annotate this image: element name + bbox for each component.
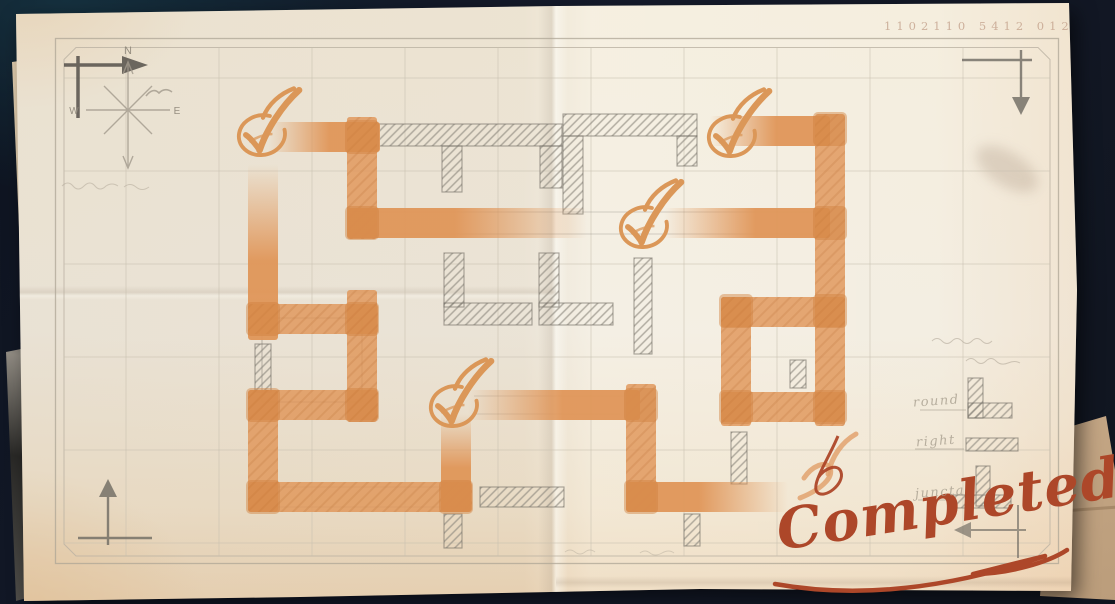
route-joint — [719, 294, 753, 328]
handwriting-scribble-left — [62, 183, 149, 190]
compass-rose: N W E — [62, 45, 181, 190]
under-paper-bottom-right — [0, 0, 1115, 604]
route-segment — [347, 208, 587, 238]
blueprint-frame — [56, 39, 1059, 564]
compass-arrow-east-head — [122, 56, 148, 74]
route-segment — [248, 304, 378, 334]
route-joint — [624, 480, 658, 514]
route-segment-hatch — [248, 390, 378, 420]
corner-mark-top-right — [962, 50, 1032, 115]
checkmark-icon — [431, 359, 491, 426]
legend-label-round: round — [913, 392, 961, 410]
route-joint — [246, 480, 280, 514]
checkmark-icon — [239, 88, 299, 155]
painted-route-layer — [246, 112, 847, 514]
bottom-fold-crease — [556, 576, 1076, 588]
route-joint — [813, 112, 847, 146]
pencil-segment — [953, 495, 1011, 508]
blueprint-paper — [0, 0, 1115, 604]
pencil-segment — [563, 114, 697, 136]
pencil-segment — [444, 514, 462, 548]
route-segment — [664, 208, 830, 238]
pencil-segment — [684, 514, 700, 546]
pencil-segment — [540, 146, 562, 188]
blueprint-scene: N W E Completed — [0, 0, 1115, 604]
pencil-segment — [563, 136, 583, 214]
route-segment-hatch — [347, 117, 377, 239]
pencil-segment — [255, 344, 271, 392]
stamp-flourish-red — [816, 436, 842, 494]
pencil-segment — [677, 136, 697, 166]
legend-annotations — [565, 339, 1020, 556]
route-segment — [721, 297, 845, 327]
legend-label-juncta: juncta — [915, 483, 966, 501]
vertical-fold-crease — [538, 0, 568, 604]
stamp-flourish-orange — [800, 464, 831, 498]
smudge-mark — [968, 136, 1045, 202]
pencil-segment — [480, 487, 564, 507]
checkmark-layer — [239, 88, 769, 426]
route-segment-hatch — [347, 290, 377, 422]
route-segment — [721, 297, 751, 426]
route-segment-hatch — [626, 384, 656, 512]
route-joint — [813, 294, 847, 328]
route-segment — [248, 482, 472, 512]
checkmark-icon — [709, 89, 769, 156]
route-segment-hatch — [248, 304, 378, 334]
checkmark-icon — [621, 180, 681, 247]
route-segment-hatch — [248, 390, 278, 512]
route-segment-hatch — [248, 482, 472, 512]
route-segment-hatch — [721, 297, 751, 426]
compass-label-north: N — [124, 45, 132, 57]
route-joint — [719, 390, 753, 424]
under-photo-strip — [0, 0, 1115, 604]
compass-label-east: E — [174, 106, 181, 117]
pencil-segment — [442, 146, 462, 192]
pencil-segment — [968, 378, 983, 418]
route-segment — [815, 114, 845, 426]
route-segment — [710, 116, 830, 146]
route-segment — [441, 414, 471, 512]
completed-stamp: Completed — [772, 434, 1115, 591]
bird-sketch — [146, 90, 172, 96]
under-paper-left — [0, 0, 1115, 604]
route-segment — [248, 390, 378, 420]
route-joint — [439, 480, 473, 514]
route-segment-hatch — [721, 392, 845, 422]
route-segment — [347, 117, 377, 239]
corner-mark-bottom-right — [954, 505, 1026, 558]
route-segment — [721, 392, 845, 422]
compass-label-west: W — [69, 106, 79, 117]
route-joint — [813, 206, 847, 240]
route-segment — [248, 390, 278, 512]
pencil-segment — [976, 466, 990, 506]
pencil-segment — [539, 303, 613, 325]
pencil-segment — [539, 253, 559, 307]
horizontal-fold-crease — [14, 286, 556, 300]
route-segment-hatch — [721, 297, 845, 327]
route-segment-hatch — [815, 114, 845, 426]
corner-mark-bottom-left — [78, 479, 152, 545]
blueprint-paper-wrap — [0, 0, 1115, 604]
serial-number: 1102110 5412 012 — [884, 19, 1074, 33]
route-segment — [626, 482, 788, 512]
route-segment — [468, 390, 640, 420]
pencil-segment — [444, 253, 464, 307]
route-joint — [624, 388, 658, 422]
puzzle-complete-screen: N W E Completed — [0, 0, 1115, 604]
pencil-segment — [731, 432, 747, 484]
pencil-segment — [968, 403, 1012, 418]
legend-label-right: right — [916, 433, 957, 451]
route-segment — [347, 290, 377, 422]
route-segment — [626, 384, 656, 512]
route-joint — [246, 302, 280, 336]
pencil-segment — [966, 438, 1018, 451]
pencil-underdrawing — [253, 212, 828, 507]
pencil-segment — [378, 124, 562, 146]
route-joint — [345, 206, 379, 240]
pencil-segment — [790, 360, 806, 388]
route-joint — [345, 120, 379, 154]
pencil-segment — [444, 303, 532, 325]
pencil-segment — [634, 258, 652, 354]
pencil-path-layer — [255, 114, 1018, 548]
stamp-underline — [775, 550, 1067, 591]
route-joint — [345, 302, 379, 336]
route-joint — [813, 390, 847, 424]
route-segment — [268, 122, 380, 152]
route-joint — [246, 388, 280, 422]
grid-layer — [64, 47, 1050, 556]
route-joint — [345, 388, 379, 422]
under-paper-fold-line — [1048, 506, 1115, 514]
completed-text: Completed — [772, 444, 1115, 563]
route-segment — [248, 164, 278, 340]
